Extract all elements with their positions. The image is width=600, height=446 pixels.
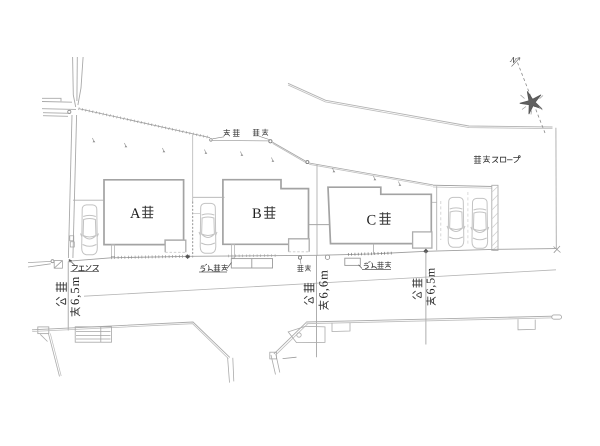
svg-text:6,5m: 6,5m bbox=[424, 267, 438, 295]
svg-text:A: A bbox=[130, 206, 141, 222]
svg-text:6,6m: 6,6m bbox=[317, 269, 331, 298]
svg-text:B: B bbox=[252, 206, 262, 222]
svg-text:C: C bbox=[367, 212, 377, 228]
svg-text:6,5m: 6,5m bbox=[68, 276, 82, 305]
